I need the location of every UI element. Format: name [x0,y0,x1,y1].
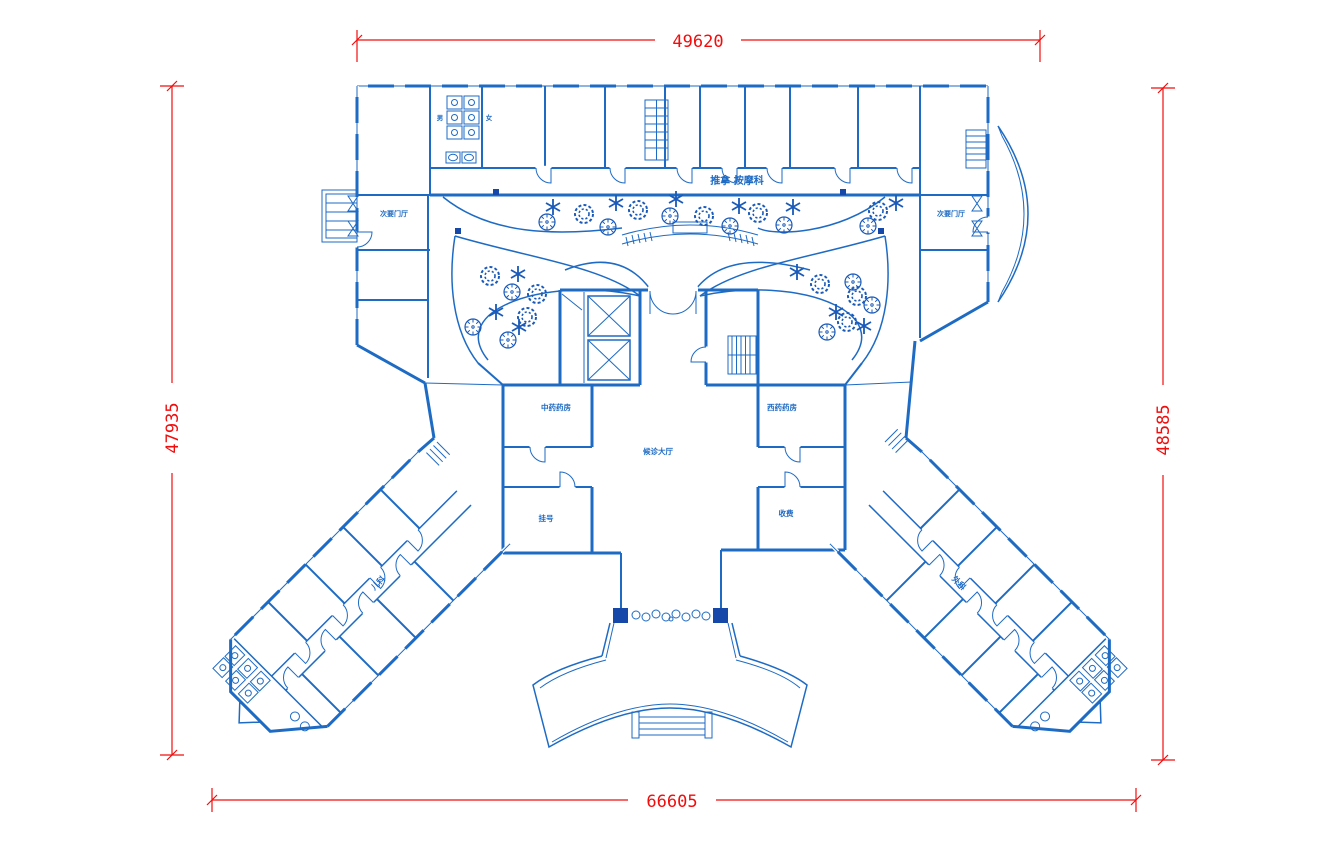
dim-bottom-value: 66605 [646,792,697,812]
room-label-female-wc: 女 [486,113,493,122]
floor-plan-svg: 49620 66605 47935 48585 [0,0,1341,847]
dim-left-value: 47935 [163,402,183,453]
tree-deciduous-icon [539,214,555,230]
atrium-garden [443,189,903,363]
dimension-top: 49620 [352,30,1045,62]
entrance-screen [632,610,710,621]
tree-palm-icon [546,199,560,215]
central-core [560,287,758,386]
main-entrance [533,608,807,747]
elevator-shafts [562,292,630,383]
room-label-top-department: 推拿 按摩科 [710,174,763,187]
dimension-right: 48585 [1151,83,1175,765]
room-label-male-wc: 男 [436,114,444,122]
cad-floor-plan-canvas: 49620 66605 47935 48585 [0,0,1341,847]
staircase-core [691,336,756,374]
room-label-cashier: 收费 [779,508,794,518]
room-label-registration: 挂号 [539,513,554,523]
staircase-right-band [966,130,986,168]
hall-and-rooms [425,363,912,608]
room-label-western-pharmacy: 西药药房 [767,402,797,412]
left-entrance-portico [322,190,358,242]
dimension-bottom: 66605 [207,788,1141,812]
room-label-left-foyer: 次要门厅 [380,209,408,218]
entrance-column-right [713,608,728,623]
fan-plaza [533,656,807,747]
dimension-left: 47935 [160,81,184,760]
entrance-column-left [613,608,628,623]
room-label-right-foyer: 次要门厅 [937,209,965,218]
tree-shrub-icon [575,205,593,223]
dim-right-value: 48585 [1154,404,1174,455]
right-entrance-canopy [972,126,1028,302]
right-wing-group [830,341,1147,769]
room-label-waiting-hall: 候诊大厅 [643,446,673,456]
left-wing-group [193,383,510,769]
room-label-chinese-pharmacy: 中药药房 [541,402,571,412]
dim-top-value: 49620 [672,32,723,52]
toilet-block [446,96,479,163]
plaza-steps [632,712,712,738]
